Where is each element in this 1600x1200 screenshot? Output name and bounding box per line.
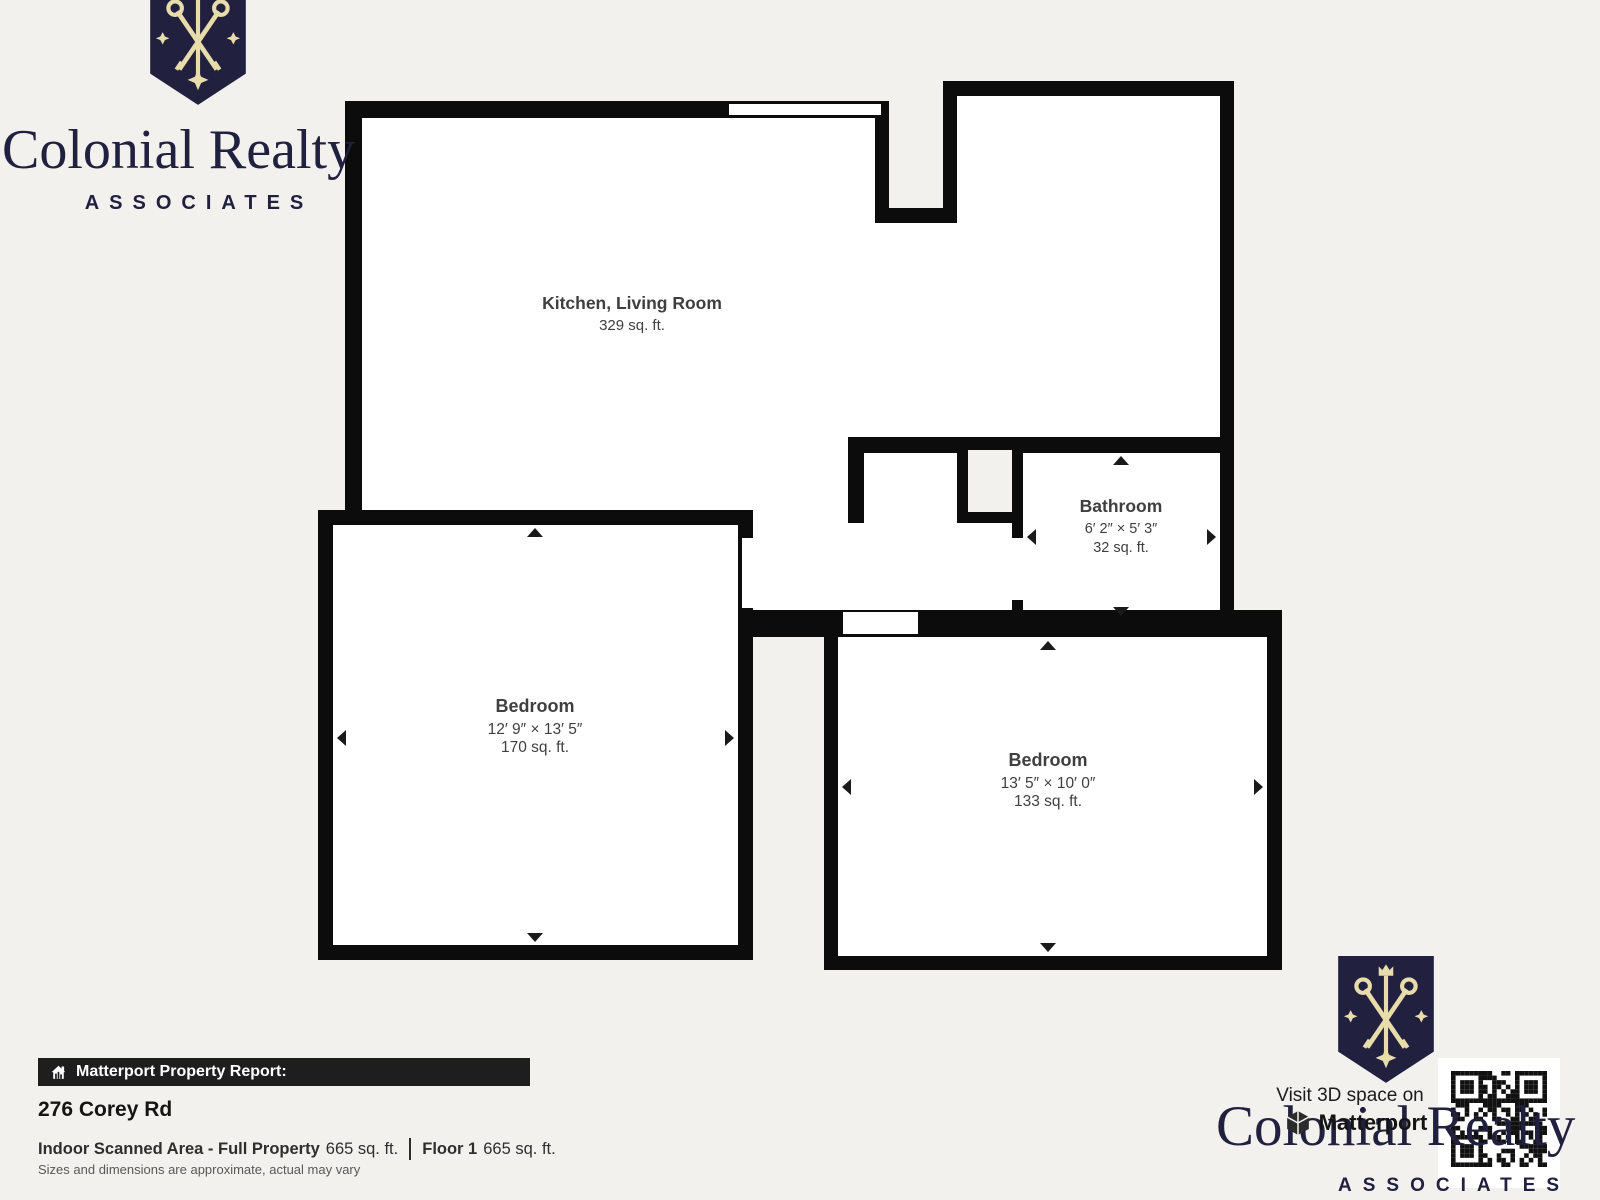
room-area-kitchen: 329 sq. ft. — [599, 317, 665, 334]
door-bedroom-right — [843, 612, 918, 637]
notch-strip-floor — [875, 223, 957, 437]
scanned-area-value: 665 sq. ft. — [326, 1140, 398, 1159]
visit-3d-text: Visit 3D space on — [1240, 1085, 1460, 1107]
room-label-bedroom-right: Bedroom — [1008, 750, 1087, 770]
divider — [409, 1138, 411, 1160]
report-title-bar: Matterport Property Report: — [38, 1058, 530, 1086]
room-dims-bathroom: 6′ 2″ × 5′ 3″ — [1085, 521, 1158, 537]
disclaimer-text: Sizes and dimensions are approximate, ac… — [38, 1162, 360, 1177]
door-bedroom-left — [739, 535, 753, 611]
report-area-summary: Indoor Scanned Area - Full Property 665 … — [38, 1138, 556, 1160]
crest-keys-icon — [148, 0, 248, 109]
door-bathroom — [1012, 535, 1023, 603]
room-dims-bedroom-left: 12′ 9″ × 13′ 5″ — [488, 721, 583, 738]
matterport-cta: Matterport — [1240, 1110, 1472, 1136]
report-bar-label: Matterport Property Report: — [76, 1063, 287, 1081]
room-dims-bedroom-right: 13′ 5″ × 10′ 0″ — [1001, 775, 1096, 792]
closet-unscanned-area — [968, 450, 1012, 512]
matterport-cube-icon — [1285, 1110, 1311, 1136]
brand-subtitle: ASSOCIATES — [1338, 1176, 1570, 1195]
floor-label: Floor 1 — [422, 1140, 477, 1159]
brand-subtitle: ASSOCIATES — [0, 193, 398, 213]
scanned-area-label: Indoor Scanned Area - Full Property — [38, 1140, 320, 1159]
kitchen-annex-floor — [957, 96, 1220, 437]
matterport-label: Matterport — [1319, 1110, 1428, 1136]
room-area-bathroom: 32 sq. ft. — [1093, 540, 1149, 556]
room-label-bathroom: Bathroom — [1080, 496, 1163, 516]
property-address: 276 Corey Rd — [38, 1098, 172, 1122]
crest-keys-icon — [1336, 956, 1436, 1087]
floor-value: 665 sq. ft. — [483, 1140, 555, 1159]
house-icon — [50, 1064, 67, 1081]
matterport-floor-plan-page: { "branding": { "name": "Colonial Realty… — [0, 0, 1600, 1200]
room-label-kitchen: Kitchen, Living Room — [542, 293, 722, 313]
room-area-bedroom-left: 170 sq. ft. — [501, 739, 569, 756]
room-area-bedroom-right: 133 sq. ft. — [1014, 793, 1082, 810]
brand-name: Colonial Realty — [2, 122, 355, 178]
room-label-bedroom-left: Bedroom — [495, 696, 574, 716]
window-kitchen — [729, 101, 881, 118]
